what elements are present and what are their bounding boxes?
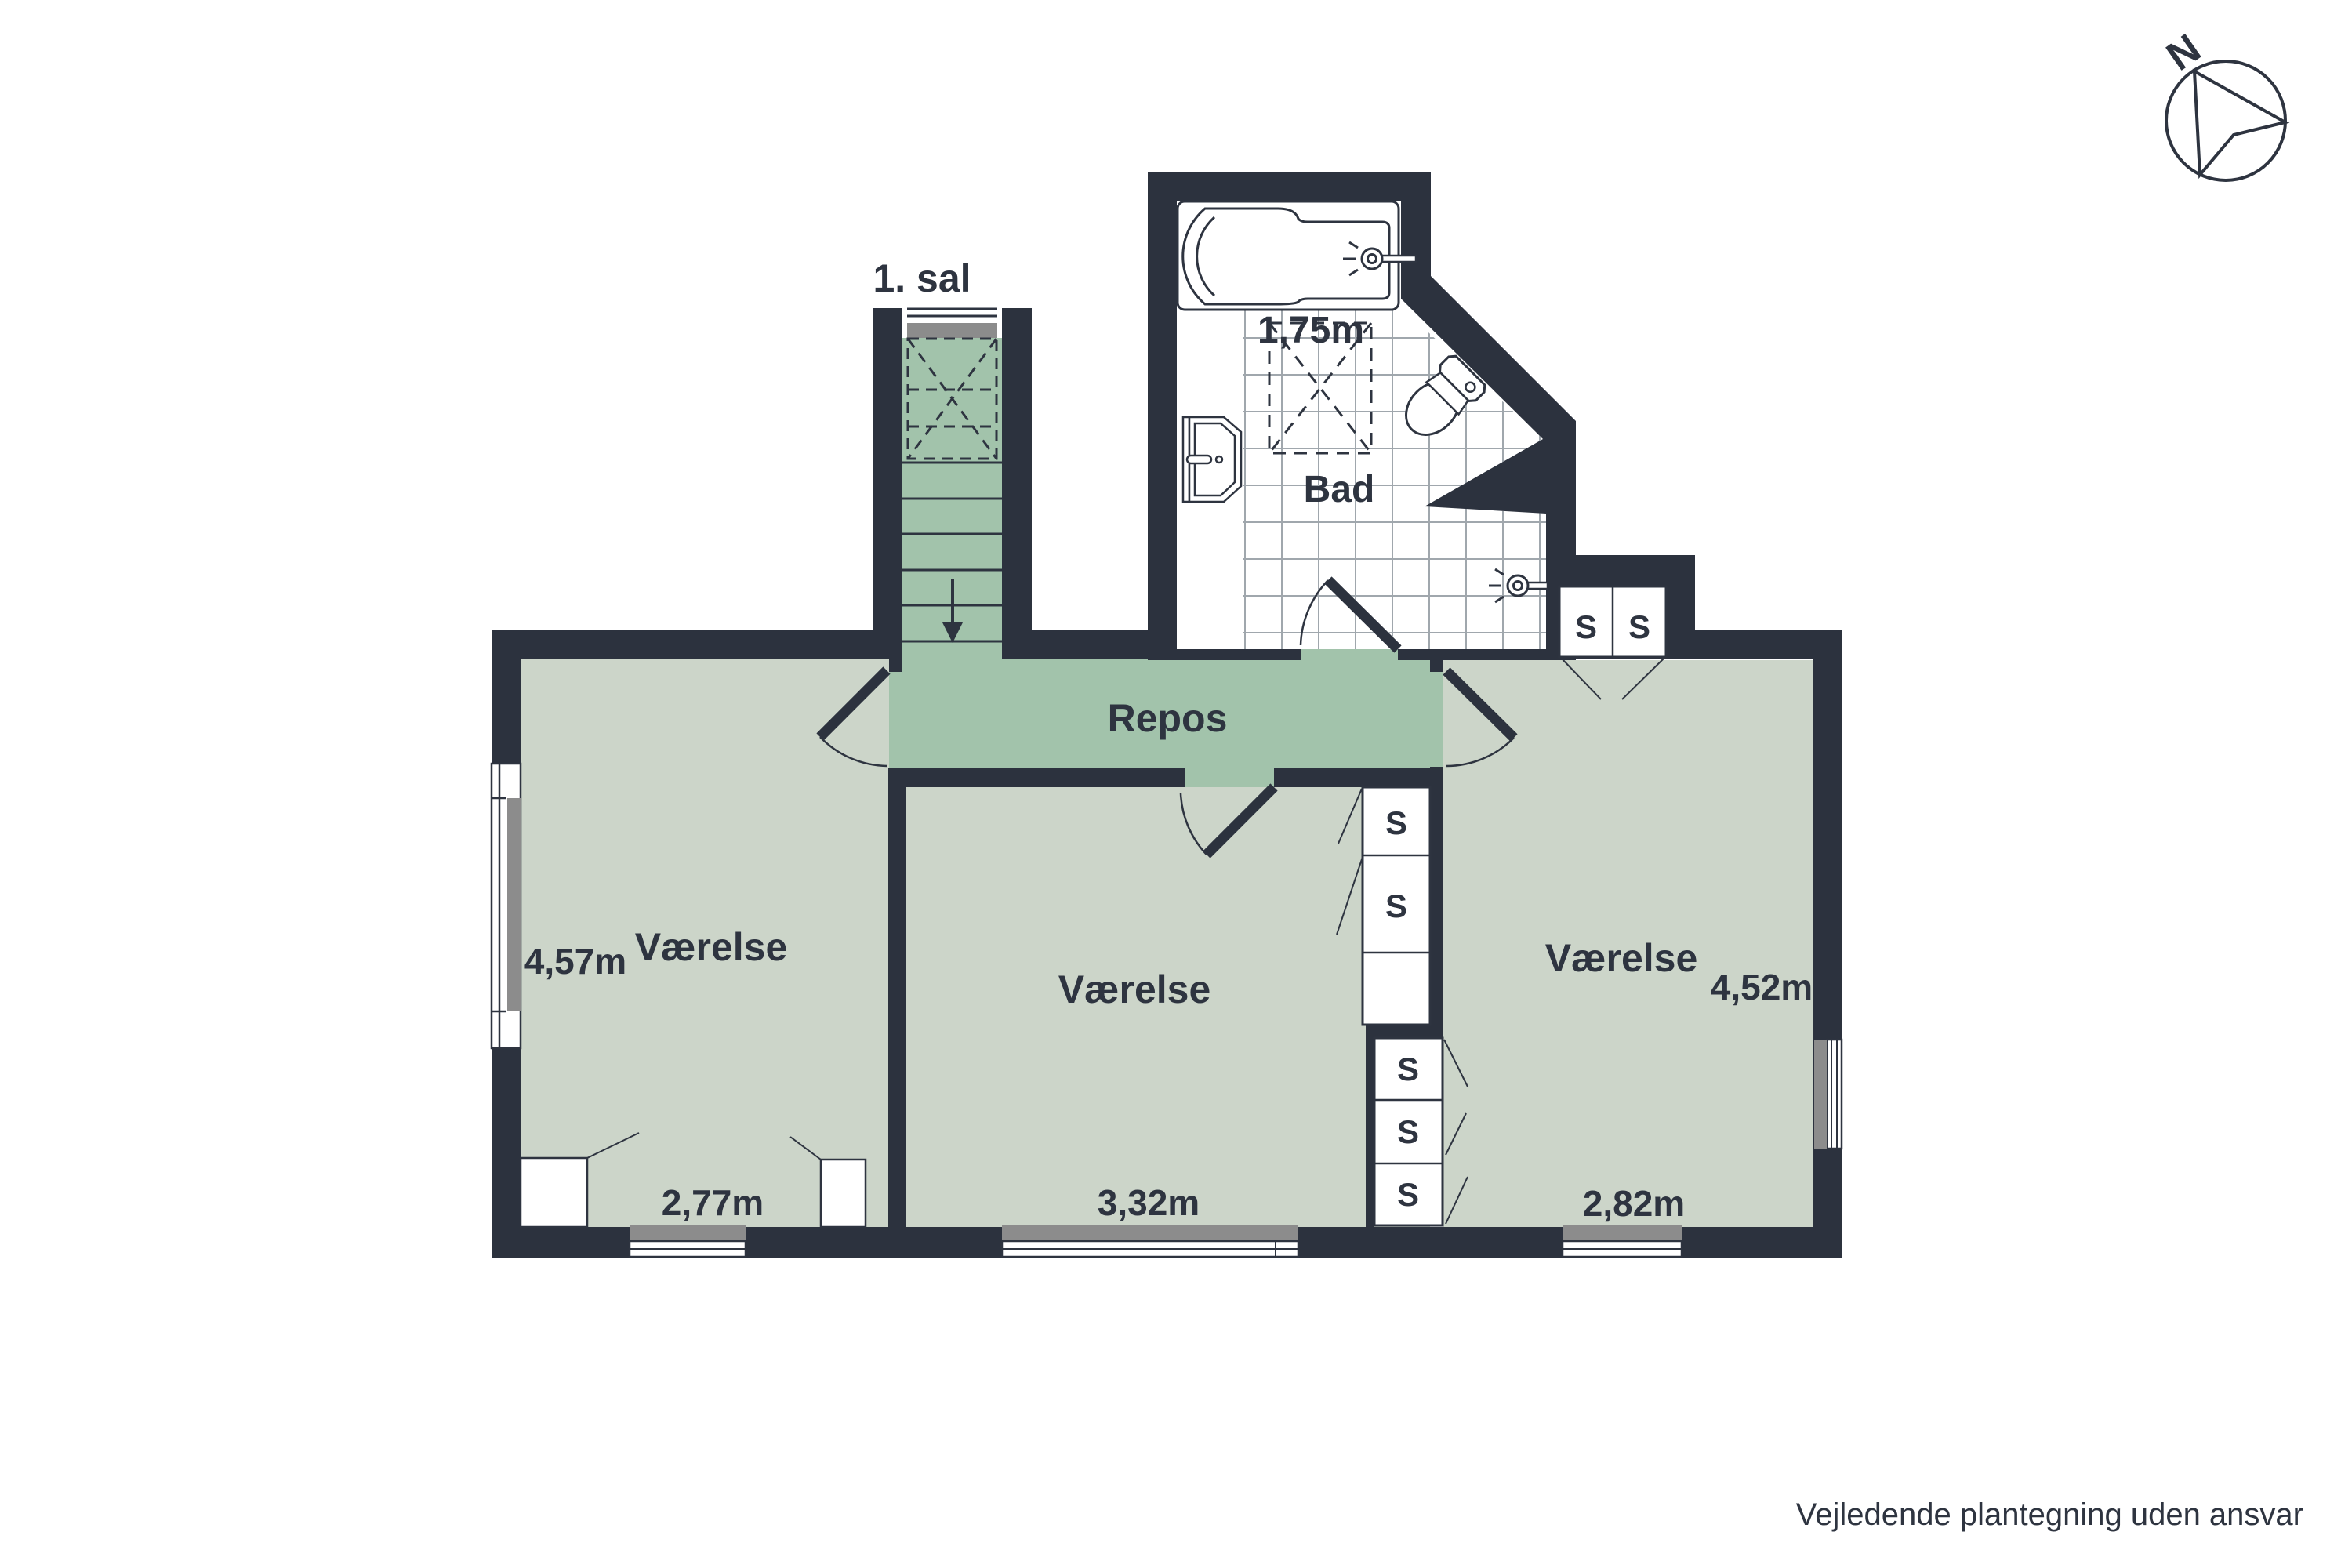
svg-text:S: S [1397,1176,1419,1213]
svg-text:Værelse: Værelse [1058,967,1211,1011]
svg-text:Repos: Repos [1108,696,1228,740]
svg-text:2,77m: 2,77m [662,1182,764,1223]
svg-text:2,82m: 2,82m [1583,1183,1685,1224]
svg-text:S: S [1385,804,1407,841]
svg-text:S: S [1397,1051,1419,1087]
svg-text:Værelse: Værelse [1545,936,1698,980]
svg-text:Værelse: Værelse [635,925,788,969]
svg-text:1. sal: 1. sal [873,256,971,300]
svg-text:4,52m: 4,52m [1711,967,1813,1007]
svg-text:1,75m: 1,75m [1258,310,1364,351]
svg-text:S: S [1397,1113,1419,1150]
svg-text:S: S [1628,608,1650,645]
svg-text:S: S [1575,608,1597,645]
svg-text:Bad: Bad [1304,469,1375,510]
svg-text:Vejledende plantegning uden an: Vejledende plantegning uden ansvar [1796,1497,2303,1532]
svg-text:3,32m: 3,32m [1098,1182,1200,1223]
svg-text:S: S [1385,887,1407,924]
svg-text:4,57m: 4,57m [524,941,626,982]
